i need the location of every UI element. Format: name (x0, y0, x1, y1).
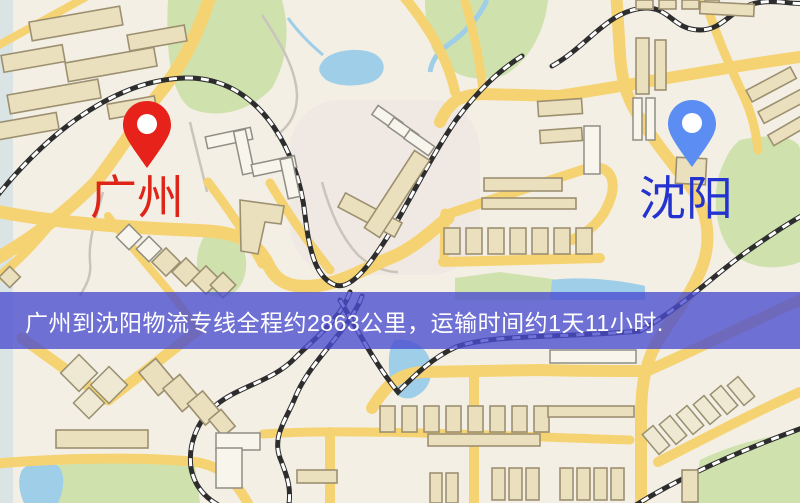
map-canvas (0, 0, 800, 503)
origin-pin-icon (121, 100, 173, 170)
logistics-route-map-image: 广州 沈阳 广州到沈阳物流专线全程约2863公里，运输时间约1天11小时. (0, 0, 800, 503)
destination-pin-icon (666, 99, 718, 169)
origin-city-label: 广州 (90, 176, 184, 223)
route-info-text: 广州到沈阳物流专线全程约2863公里，运输时间约1天11小时. (25, 304, 664, 338)
destination-city-label: 沈阳 (639, 177, 733, 224)
route-info-banner: 广州到沈阳物流专线全程约2863公里，运输时间约1天11小时. (0, 292, 800, 349)
origin-pin-shape (123, 101, 171, 168)
destination-pin-shape (668, 100, 716, 167)
